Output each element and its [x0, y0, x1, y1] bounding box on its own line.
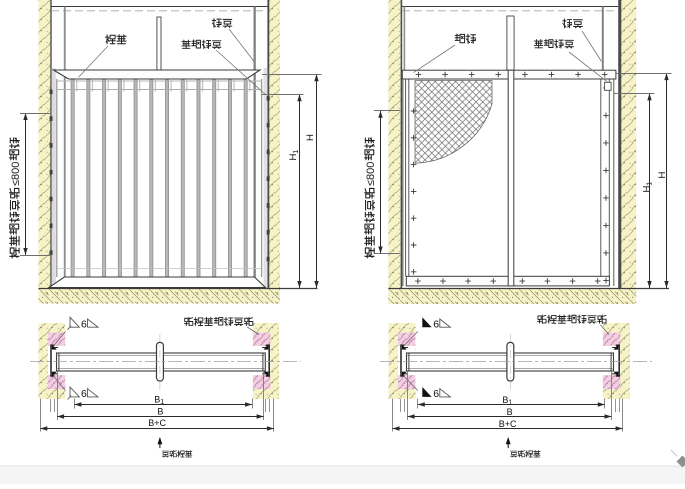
svg-text:≤800: ≤800: [10, 162, 22, 186]
svg-text:B: B: [507, 407, 513, 417]
svg-text:B+C: B+C: [499, 419, 517, 429]
svg-text:H: H: [657, 172, 668, 179]
svg-text:6: 6: [433, 318, 439, 330]
svg-text:≤800: ≤800: [365, 162, 377, 186]
svg-text:6: 6: [81, 318, 87, 330]
svg-text:B: B: [157, 406, 163, 416]
svg-text:6: 6: [433, 388, 439, 400]
svg-text:H: H: [305, 134, 316, 141]
svg-text:6: 6: [81, 388, 87, 400]
svg-text:B+C: B+C: [148, 418, 166, 428]
